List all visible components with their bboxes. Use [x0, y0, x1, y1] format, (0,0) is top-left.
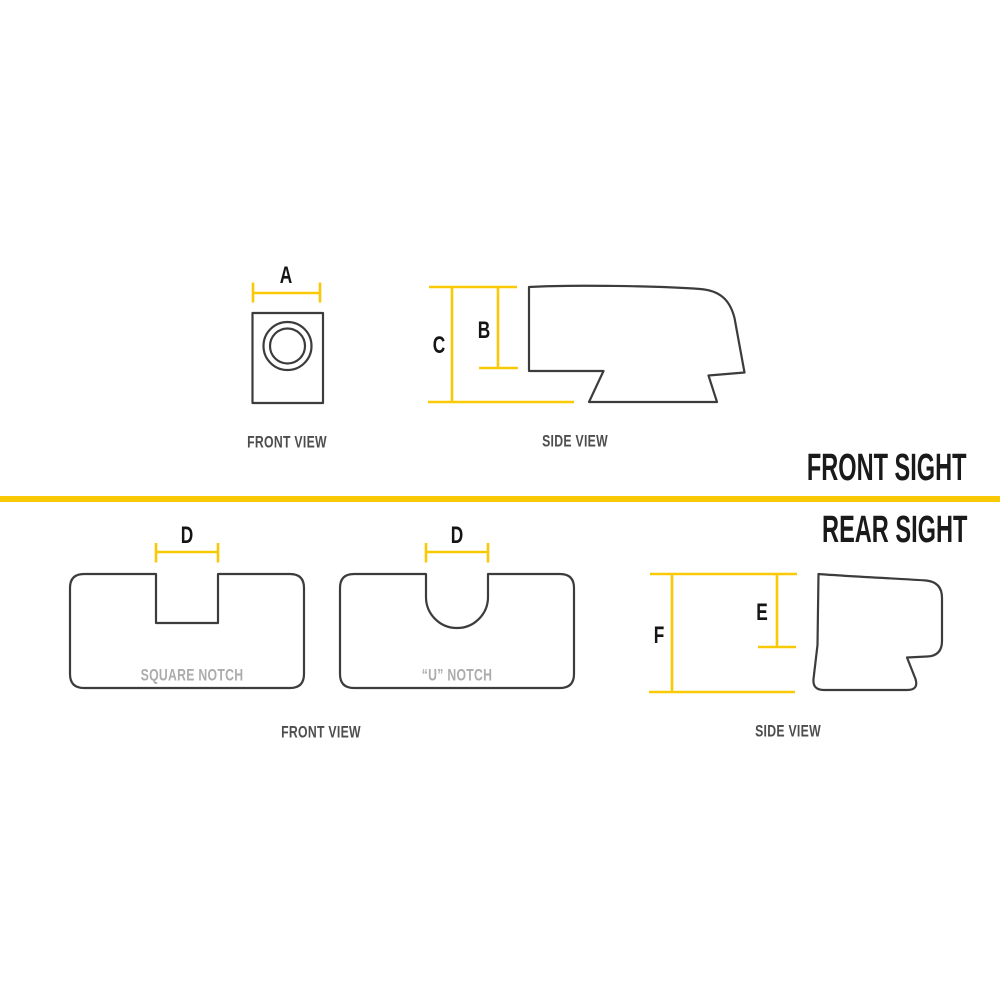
u-notch-label: “U” NOTCH	[422, 667, 493, 684]
dimension-d-u-label: D	[451, 524, 463, 548]
front-sight-side-view-drawing	[529, 286, 745, 402]
dimension-e-f-lines	[649, 574, 797, 692]
rear-sight-side-view-drawing	[813, 574, 942, 690]
dimension-f-label: F	[654, 624, 665, 648]
dimension-e-label: E	[756, 601, 768, 625]
rear-sight-side-view-caption: SIDE VIEW	[755, 723, 821, 740]
tritium-ring-inner	[270, 329, 305, 364]
rear-sight-section-title: REAR SIGHT	[822, 511, 967, 549]
dimension-b-label: B	[478, 319, 490, 343]
square-notch-label: SQUARE NOTCH	[141, 667, 244, 684]
front-sight-side-view-caption: SIDE VIEW	[542, 433, 608, 450]
dimension-a-label: A	[280, 264, 292, 288]
front-sight-front-view-drawing	[253, 313, 324, 403]
sight-dimensions-diagram: FRONT SIGHT REAR SIGHT A B C D D E F FRO…	[0, 0, 1000, 1000]
rear-sight-front-view-caption: FRONT VIEW	[281, 724, 361, 741]
dimension-b-c-lines	[428, 287, 574, 402]
dimension-c-label: C	[433, 334, 445, 358]
dimension-d-square-label: D	[181, 524, 193, 548]
front-sight-section-title: FRONT SIGHT	[807, 449, 967, 487]
front-sight-front-view-caption: FRONT VIEW	[247, 434, 327, 451]
section-divider-line	[0, 496, 1000, 502]
